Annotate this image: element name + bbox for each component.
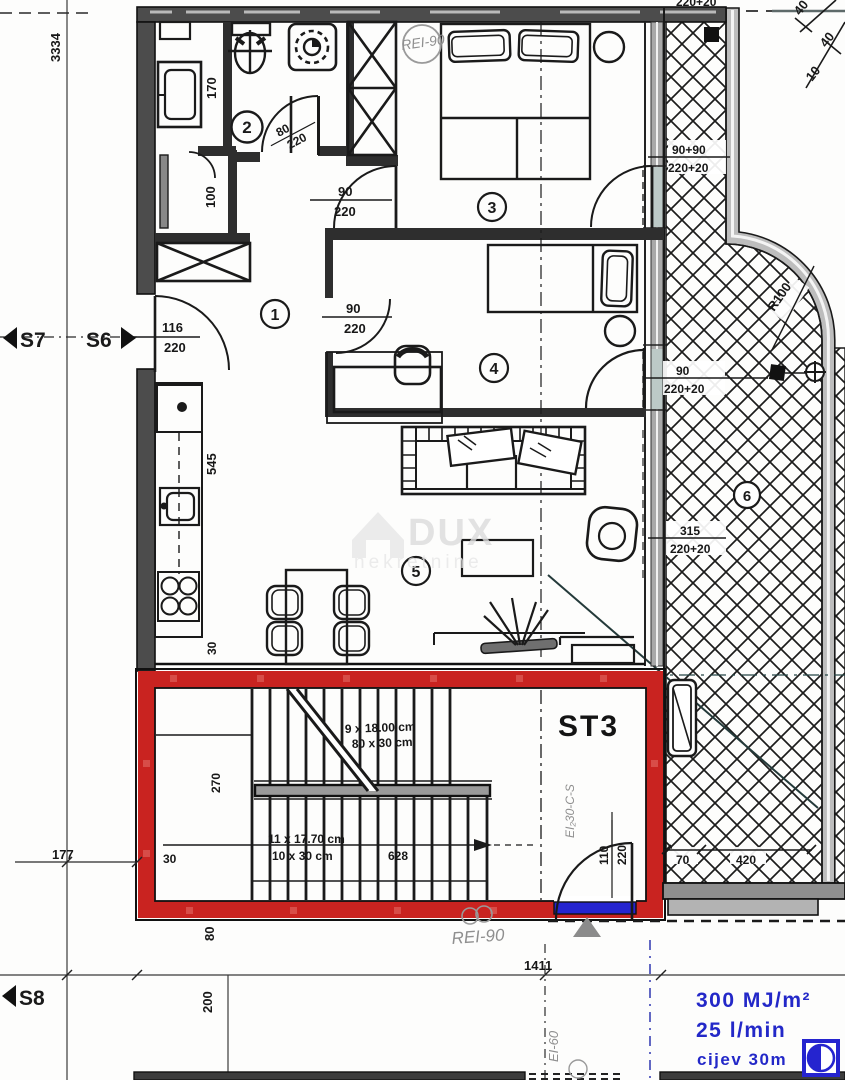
svg-text:11 x 17.70 cm: 11 x 17.70 cm <box>268 832 345 846</box>
svg-text:110: 110 <box>597 845 611 865</box>
svg-text:220+20: 220+20 <box>670 542 711 556</box>
svg-text:DUX: DUX <box>408 512 494 554</box>
svg-text:170: 170 <box>204 77 219 99</box>
svg-text:S7: S7 <box>20 329 46 352</box>
svg-text:3: 3 <box>488 200 497 217</box>
svg-text:545: 545 <box>204 453 219 475</box>
svg-text:30: 30 <box>205 641 219 655</box>
svg-text:116: 116 <box>162 320 183 335</box>
svg-text:80 x 30 cm: 80 x 30 cm <box>352 735 413 751</box>
svg-text:4: 4 <box>490 361 499 378</box>
svg-text:220: 220 <box>344 321 366 336</box>
svg-text:90: 90 <box>676 364 690 378</box>
svg-text:1411: 1411 <box>524 958 552 973</box>
svg-text:S8: S8 <box>19 987 45 1010</box>
svg-text:420: 420 <box>736 853 756 867</box>
svg-text:300 MJ/m²: 300 MJ/m² <box>696 989 811 1012</box>
svg-text:315: 315 <box>680 524 700 538</box>
svg-text:2: 2 <box>242 118 251 137</box>
svg-text:REI-90: REI-90 <box>451 925 506 948</box>
svg-text:90: 90 <box>346 301 360 316</box>
svg-text:177: 177 <box>52 847 74 862</box>
svg-text:200: 200 <box>200 991 215 1013</box>
svg-text:80: 80 <box>202 927 217 941</box>
svg-text:220+20: 220+20 <box>664 382 705 396</box>
svg-text:S6: S6 <box>86 329 112 352</box>
svg-text:ST3: ST3 <box>558 710 619 743</box>
svg-text:220+20: 220+20 <box>668 161 709 175</box>
svg-text:220: 220 <box>615 845 629 865</box>
svg-text:10 x 30 cm: 10 x 30 cm <box>272 849 333 863</box>
svg-text:3334: 3334 <box>48 32 63 62</box>
svg-text:90+90: 90+90 <box>672 143 706 157</box>
svg-text:220: 220 <box>334 204 356 219</box>
svg-text:EI₂30-C-S: EI₂30-C-S <box>563 784 577 838</box>
svg-text:EI-60: EI-60 <box>546 1030 561 1062</box>
svg-text:9 x 18.00 cm: 9 x 18.00 cm <box>345 720 416 736</box>
svg-text:cijev 30m: cijev 30m <box>697 1050 787 1069</box>
svg-text:30: 30 <box>163 852 177 866</box>
svg-text:220: 220 <box>164 340 186 355</box>
svg-text:270: 270 <box>209 773 223 793</box>
svg-text:628: 628 <box>388 849 408 863</box>
svg-text:25 l/min: 25 l/min <box>696 1019 786 1042</box>
svg-text:220+20: 220+20 <box>676 0 717 9</box>
svg-text:100: 100 <box>203 186 218 208</box>
svg-text:90: 90 <box>338 184 352 199</box>
svg-text:nekretnine: nekretnine <box>354 552 483 573</box>
svg-text:70: 70 <box>676 853 690 867</box>
svg-text:6: 6 <box>743 488 751 505</box>
svg-text:1: 1 <box>271 307 280 324</box>
